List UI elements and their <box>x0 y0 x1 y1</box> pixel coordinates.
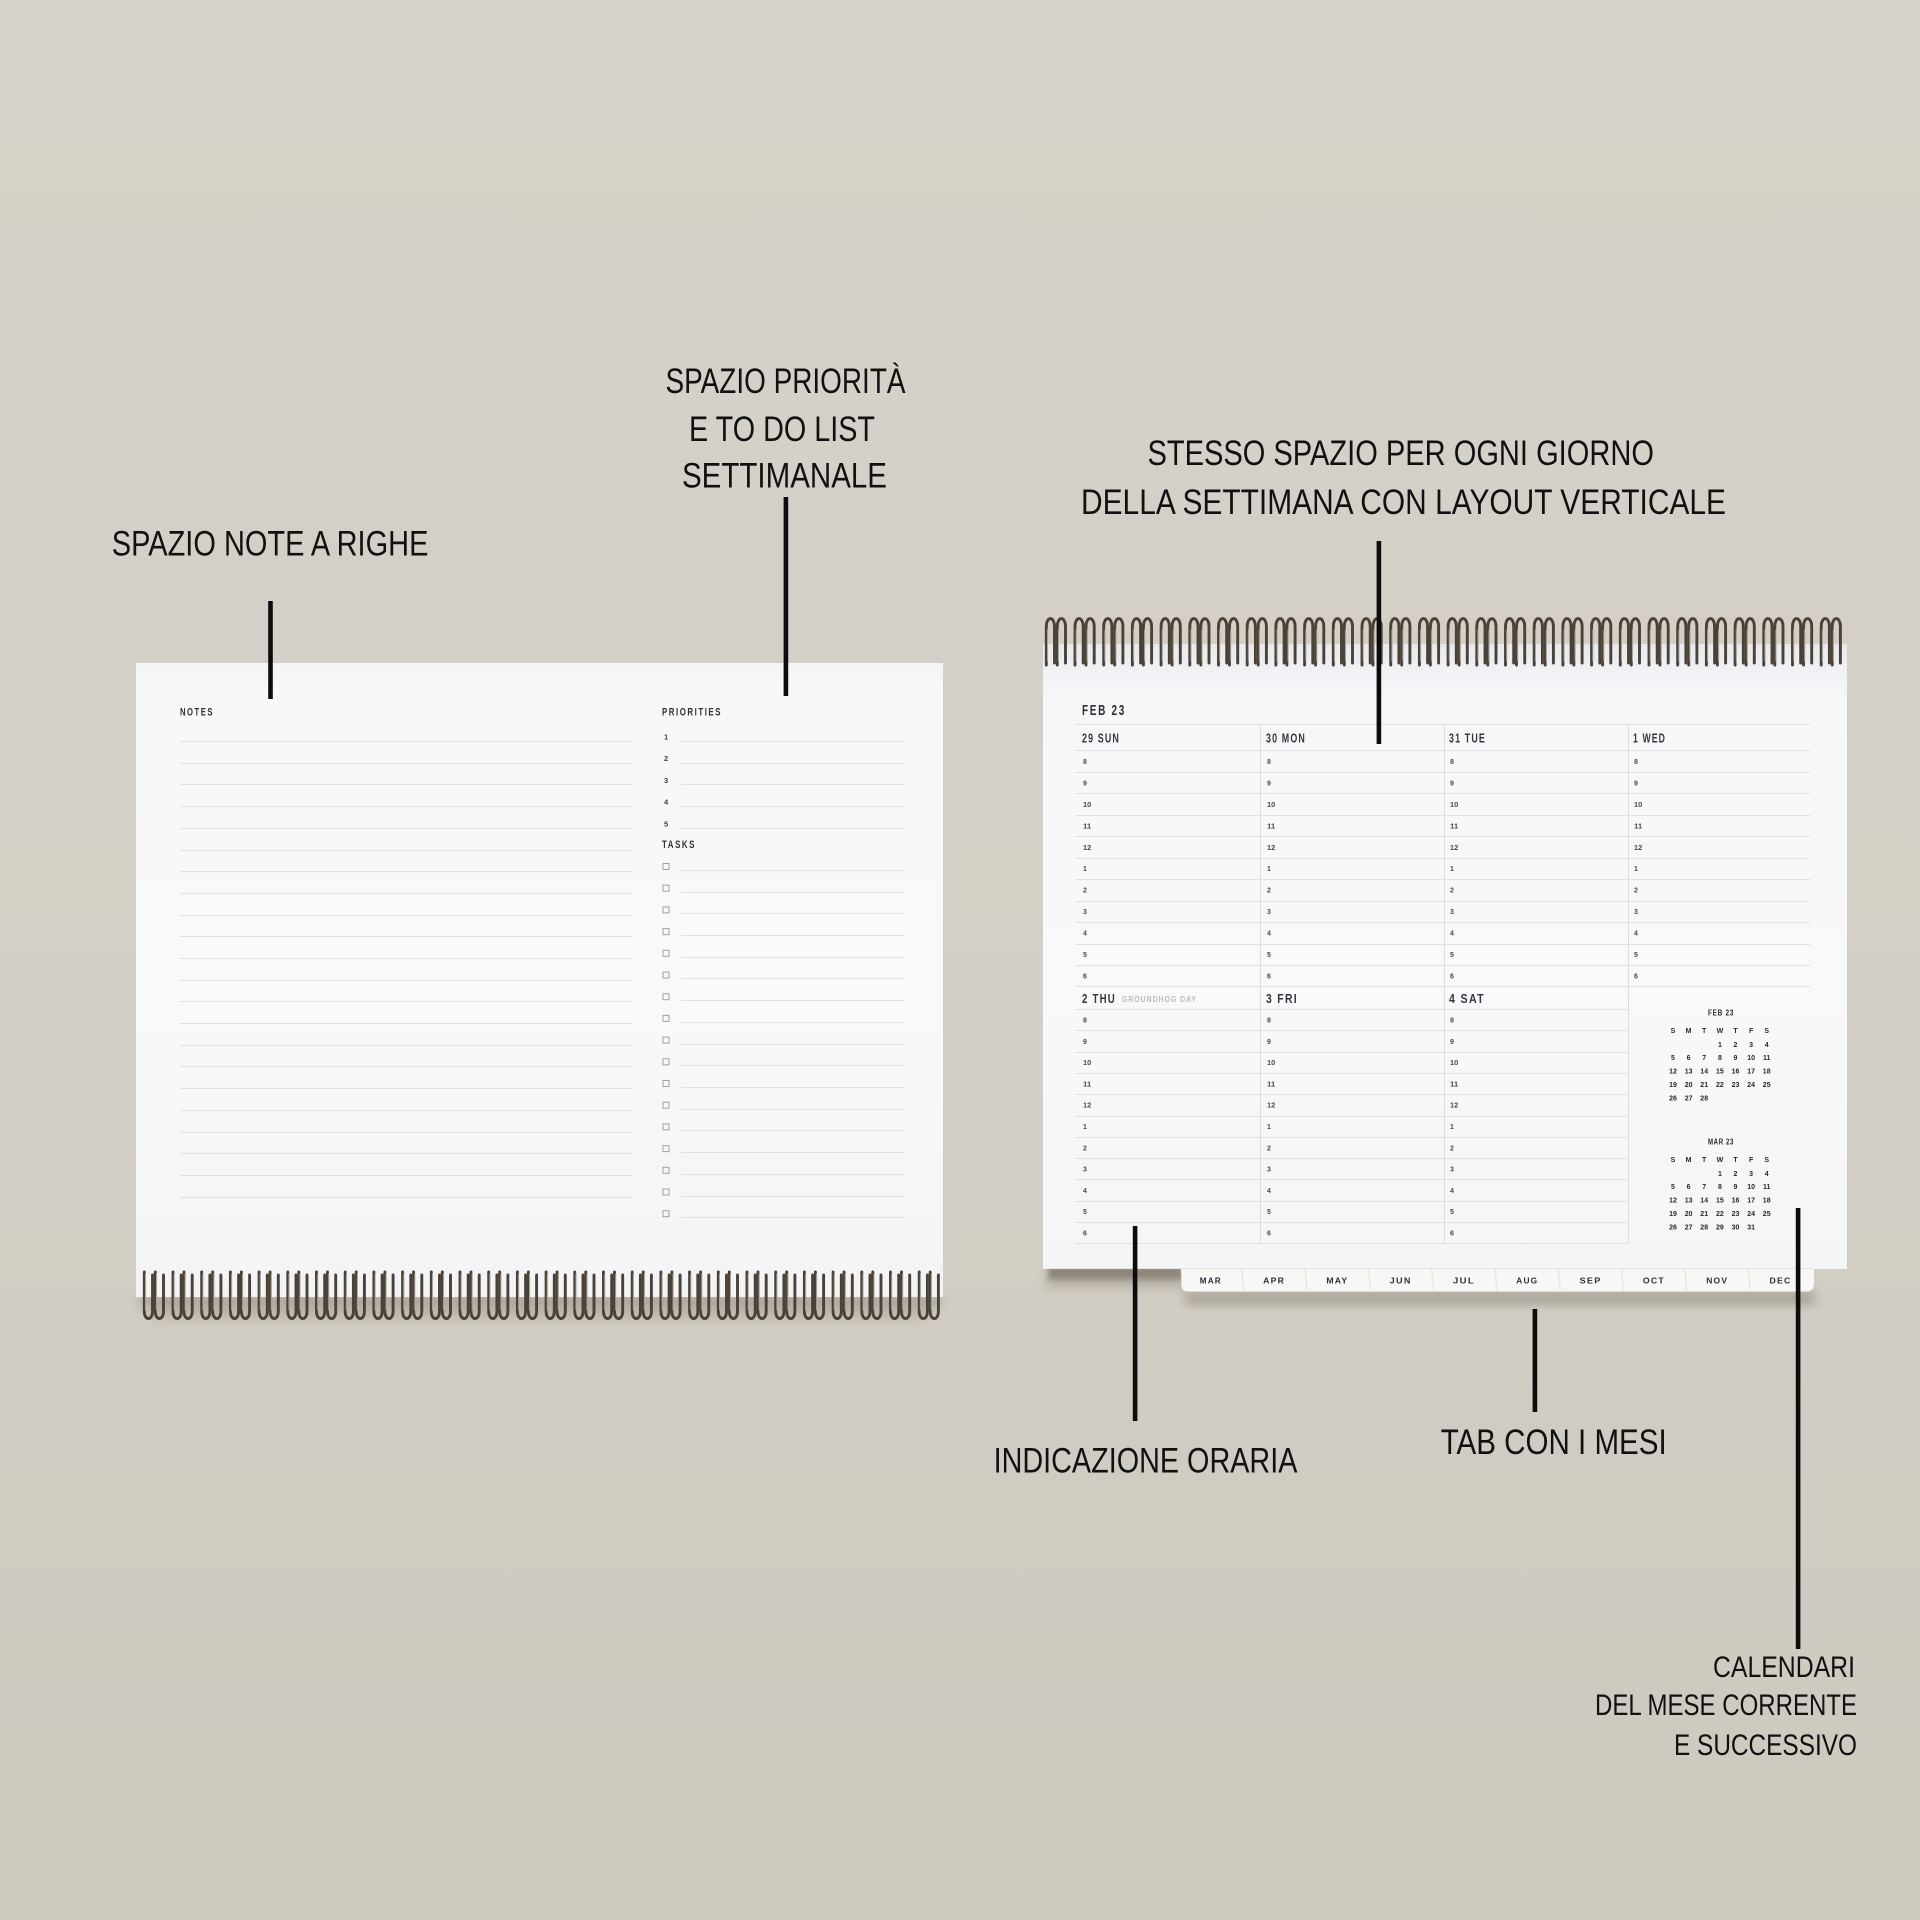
svg-text:SPAZIO NOTE A RIGHE: SPAZIO NOTE A RIGHE <box>112 525 429 564</box>
svg-text:17: 17 <box>1747 1069 1755 1076</box>
svg-text:JUN: JUN <box>1390 1276 1412 1286</box>
svg-text:4: 4 <box>1450 931 1454 938</box>
svg-text:11: 11 <box>1763 1184 1771 1191</box>
svg-text:20: 20 <box>1685 1082 1693 1089</box>
svg-text:29: 29 <box>1716 1224 1724 1231</box>
svg-text:6: 6 <box>1687 1184 1691 1191</box>
svg-text:GROUNDHOG DAY: GROUNDHOG DAY <box>1122 994 1197 1004</box>
svg-text:10: 10 <box>1450 1060 1458 1067</box>
svg-text:10: 10 <box>1083 802 1091 809</box>
svg-text:M: M <box>1686 1028 1692 1035</box>
svg-text:2: 2 <box>664 754 668 763</box>
svg-text:5: 5 <box>1083 1209 1087 1216</box>
svg-text:4: 4 <box>1267 1188 1271 1195</box>
svg-text:11: 11 <box>1267 823 1275 830</box>
svg-text:12: 12 <box>1669 1198 1677 1205</box>
svg-text:3: 3 <box>1083 909 1087 916</box>
svg-text:TAB CON I MESI: TAB CON I MESI <box>1441 1423 1667 1462</box>
svg-text:PRIORITIES: PRIORITIES <box>662 707 722 719</box>
svg-text:5: 5 <box>1450 952 1454 959</box>
svg-text:S: S <box>1671 1028 1676 1035</box>
svg-text:3: 3 <box>1450 909 1454 916</box>
svg-text:8: 8 <box>1718 1055 1722 1062</box>
svg-text:23: 23 <box>1732 1082 1740 1089</box>
svg-text:10: 10 <box>1450 802 1458 809</box>
svg-text:1: 1 <box>1083 866 1087 873</box>
svg-text:3: 3 <box>1450 1167 1454 1174</box>
svg-text:2: 2 <box>1450 1145 1454 1152</box>
svg-text:4: 4 <box>1450 1188 1454 1195</box>
svg-text:10: 10 <box>1083 1060 1091 1067</box>
svg-text:3: 3 <box>1634 909 1638 916</box>
svg-text:T: T <box>1702 1028 1707 1035</box>
svg-text:5: 5 <box>1450 1209 1454 1216</box>
svg-text:8: 8 <box>1634 759 1638 766</box>
svg-text:12: 12 <box>1669 1069 1677 1076</box>
svg-text:9: 9 <box>1734 1055 1738 1062</box>
svg-text:14: 14 <box>1700 1198 1708 1205</box>
svg-text:22: 22 <box>1716 1211 1724 1218</box>
svg-text:9: 9 <box>1083 1039 1087 1046</box>
svg-text:INDICAZIONE ORARIA: INDICAZIONE ORARIA <box>994 1442 1298 1481</box>
svg-text:DELLA SETTIMANA CON LAYOUT VER: DELLA SETTIMANA CON LAYOUT VERTICALE <box>1081 483 1726 522</box>
svg-text:3: 3 <box>1083 1167 1087 1174</box>
svg-text:8: 8 <box>1083 1018 1087 1025</box>
svg-text:8: 8 <box>1267 759 1271 766</box>
svg-text:4 SAT: 4 SAT <box>1449 992 1485 1006</box>
svg-text:MAR 23: MAR 23 <box>1708 1138 1734 1147</box>
svg-text:STESSO SPAZIO PER OGNI GIORNO: STESSO SPAZIO PER OGNI GIORNO <box>1147 434 1654 473</box>
svg-text:2: 2 <box>1267 888 1271 895</box>
svg-text:7: 7 <box>1702 1055 1706 1062</box>
svg-text:24: 24 <box>1747 1211 1755 1218</box>
svg-text:8: 8 <box>1083 759 1087 766</box>
svg-text:9: 9 <box>1734 1184 1738 1191</box>
svg-text:19: 19 <box>1669 1211 1677 1218</box>
svg-text:12: 12 <box>1267 845 1275 852</box>
svg-text:12: 12 <box>1450 1103 1458 1110</box>
svg-text:10: 10 <box>1267 1060 1275 1067</box>
svg-text:2: 2 <box>1083 1145 1087 1152</box>
svg-text:1: 1 <box>1267 1124 1271 1131</box>
svg-text:S: S <box>1671 1157 1676 1164</box>
svg-text:2: 2 <box>1083 888 1087 895</box>
svg-text:5: 5 <box>1267 1209 1271 1216</box>
svg-text:9: 9 <box>1634 781 1638 788</box>
svg-text:10: 10 <box>1747 1055 1755 1062</box>
svg-text:W: W <box>1717 1157 1724 1164</box>
svg-text:9: 9 <box>1450 781 1454 788</box>
svg-text:T: T <box>1733 1028 1738 1035</box>
svg-text:31: 31 <box>1747 1224 1755 1231</box>
svg-text:3: 3 <box>1267 909 1271 916</box>
svg-text:AUG: AUG <box>1516 1276 1538 1286</box>
svg-text:6: 6 <box>1687 1055 1691 1062</box>
svg-text:E TO DO LIST: E TO DO LIST <box>689 410 875 449</box>
svg-text:3: 3 <box>1749 1042 1753 1049</box>
svg-text:18: 18 <box>1763 1069 1771 1076</box>
svg-text:8: 8 <box>1267 1018 1271 1025</box>
svg-text:APR: APR <box>1263 1276 1285 1286</box>
svg-text:4: 4 <box>1083 931 1087 938</box>
svg-text:31 TUE: 31 TUE <box>1449 732 1486 746</box>
svg-text:T: T <box>1733 1157 1738 1164</box>
svg-text:16: 16 <box>1732 1069 1740 1076</box>
svg-text:1: 1 <box>1718 1042 1722 1049</box>
svg-text:21: 21 <box>1700 1211 1708 1218</box>
svg-text:3: 3 <box>664 776 668 785</box>
svg-text:19: 19 <box>1669 1082 1677 1089</box>
svg-text:3: 3 <box>1749 1171 1753 1178</box>
svg-text:6: 6 <box>1634 974 1638 981</box>
svg-text:5: 5 <box>664 819 668 828</box>
svg-text:NOTES: NOTES <box>180 707 214 719</box>
svg-text:9: 9 <box>1083 781 1087 788</box>
svg-text:12: 12 <box>1634 845 1642 852</box>
svg-text:4: 4 <box>1634 931 1638 938</box>
svg-text:DEL MESE CORRENTE: DEL MESE CORRENTE <box>1595 1689 1857 1722</box>
svg-text:15: 15 <box>1716 1069 1724 1076</box>
svg-text:S: S <box>1764 1028 1769 1035</box>
svg-text:MAR: MAR <box>1200 1276 1222 1286</box>
svg-text:1: 1 <box>664 733 668 742</box>
svg-text:9: 9 <box>1267 1039 1271 1046</box>
svg-text:5: 5 <box>1267 952 1271 959</box>
svg-text:DEC: DEC <box>1770 1276 1792 1286</box>
svg-text:8: 8 <box>1718 1184 1722 1191</box>
svg-text:JUL: JUL <box>1453 1276 1475 1286</box>
svg-text:1 WED: 1 WED <box>1633 732 1666 746</box>
svg-text:25: 25 <box>1763 1211 1771 1218</box>
svg-text:17: 17 <box>1747 1198 1755 1205</box>
svg-text:30: 30 <box>1732 1224 1740 1231</box>
svg-text:5: 5 <box>1671 1184 1675 1191</box>
svg-text:26: 26 <box>1669 1224 1677 1231</box>
svg-text:26: 26 <box>1669 1095 1677 1102</box>
svg-text:10: 10 <box>1267 802 1275 809</box>
svg-text:9: 9 <box>1450 1039 1454 1046</box>
svg-text:8: 8 <box>1450 1018 1454 1025</box>
svg-text:NOV: NOV <box>1706 1276 1728 1286</box>
svg-text:2 THU: 2 THU <box>1082 992 1116 1006</box>
svg-text:F: F <box>1749 1028 1754 1035</box>
svg-text:27: 27 <box>1685 1095 1693 1102</box>
svg-text:1: 1 <box>1083 1124 1087 1131</box>
svg-text:6: 6 <box>1267 974 1271 981</box>
svg-text:6: 6 <box>1450 974 1454 981</box>
svg-text:5: 5 <box>1671 1055 1675 1062</box>
svg-text:25: 25 <box>1763 1082 1771 1089</box>
svg-text:9: 9 <box>1267 781 1271 788</box>
svg-text:6: 6 <box>1450 1231 1454 1238</box>
svg-text:16: 16 <box>1732 1198 1740 1205</box>
svg-text:30 MON: 30 MON <box>1266 732 1306 746</box>
svg-text:11: 11 <box>1634 823 1642 830</box>
svg-text:S: S <box>1764 1157 1769 1164</box>
svg-text:4: 4 <box>1765 1171 1769 1178</box>
svg-text:FEB 23: FEB 23 <box>1082 702 1126 719</box>
svg-text:7: 7 <box>1702 1184 1706 1191</box>
svg-text:F: F <box>1749 1157 1754 1164</box>
svg-text:21: 21 <box>1700 1082 1708 1089</box>
svg-text:12: 12 <box>1267 1103 1275 1110</box>
svg-text:4: 4 <box>1267 931 1271 938</box>
svg-text:10: 10 <box>1634 802 1642 809</box>
svg-text:12: 12 <box>1083 845 1091 852</box>
svg-text:1: 1 <box>1450 866 1454 873</box>
svg-text:T: T <box>1702 1157 1707 1164</box>
svg-text:1: 1 <box>1267 866 1271 873</box>
svg-text:13: 13 <box>1685 1198 1693 1205</box>
svg-text:3: 3 <box>1267 1167 1271 1174</box>
svg-text:2: 2 <box>1267 1145 1271 1152</box>
svg-text:3 FRI: 3 FRI <box>1266 992 1298 1006</box>
svg-text:29 SUN: 29 SUN <box>1082 732 1120 746</box>
svg-text:6: 6 <box>1267 1231 1271 1238</box>
svg-text:SEP: SEP <box>1580 1276 1602 1286</box>
svg-text:11: 11 <box>1450 1081 1458 1088</box>
svg-text:TASKS: TASKS <box>662 839 696 851</box>
svg-text:1: 1 <box>1634 866 1638 873</box>
svg-text:2: 2 <box>1450 888 1454 895</box>
svg-text:2: 2 <box>1734 1042 1738 1049</box>
svg-text:28: 28 <box>1700 1095 1708 1102</box>
svg-text:12: 12 <box>1083 1103 1091 1110</box>
svg-text:14: 14 <box>1700 1069 1708 1076</box>
svg-text:1: 1 <box>1718 1171 1722 1178</box>
svg-text:15: 15 <box>1716 1198 1724 1205</box>
svg-text:28: 28 <box>1700 1224 1708 1231</box>
svg-text:18: 18 <box>1763 1198 1771 1205</box>
svg-text:11: 11 <box>1267 1081 1275 1088</box>
svg-text:22: 22 <box>1716 1082 1724 1089</box>
svg-text:SPAZIO PRIORITÀ: SPAZIO PRIORITÀ <box>666 362 907 401</box>
svg-text:11: 11 <box>1083 1081 1091 1088</box>
svg-text:24: 24 <box>1747 1082 1755 1089</box>
svg-text:11: 11 <box>1083 823 1091 830</box>
svg-text:10: 10 <box>1747 1184 1755 1191</box>
svg-text:MAY: MAY <box>1326 1276 1348 1286</box>
svg-text:M: M <box>1686 1157 1692 1164</box>
svg-text:2: 2 <box>1634 888 1638 895</box>
svg-text:6: 6 <box>1083 974 1087 981</box>
svg-text:13: 13 <box>1685 1069 1693 1076</box>
svg-text:4: 4 <box>1083 1188 1087 1195</box>
svg-text:FEB 23: FEB 23 <box>1708 1009 1734 1018</box>
svg-text:OCT: OCT <box>1643 1276 1665 1286</box>
svg-text:4: 4 <box>1765 1042 1769 1049</box>
svg-text:5: 5 <box>1634 952 1638 959</box>
svg-text:23: 23 <box>1732 1211 1740 1218</box>
svg-text:6: 6 <box>1083 1231 1087 1238</box>
svg-text:SETTIMANALE: SETTIMANALE <box>682 457 887 496</box>
svg-text:27: 27 <box>1685 1224 1693 1231</box>
svg-text:12: 12 <box>1450 845 1458 852</box>
svg-text:20: 20 <box>1685 1211 1693 1218</box>
svg-text:E SUCCESSIVO: E SUCCESSIVO <box>1674 1729 1857 1762</box>
svg-text:11: 11 <box>1763 1055 1771 1062</box>
svg-text:5: 5 <box>1083 952 1087 959</box>
svg-text:2: 2 <box>1734 1171 1738 1178</box>
svg-text:1: 1 <box>1450 1124 1454 1131</box>
svg-text:W: W <box>1717 1028 1724 1035</box>
svg-text:11: 11 <box>1450 823 1458 830</box>
svg-text:8: 8 <box>1450 759 1454 766</box>
svg-text:CALENDARI: CALENDARI <box>1713 1651 1855 1684</box>
